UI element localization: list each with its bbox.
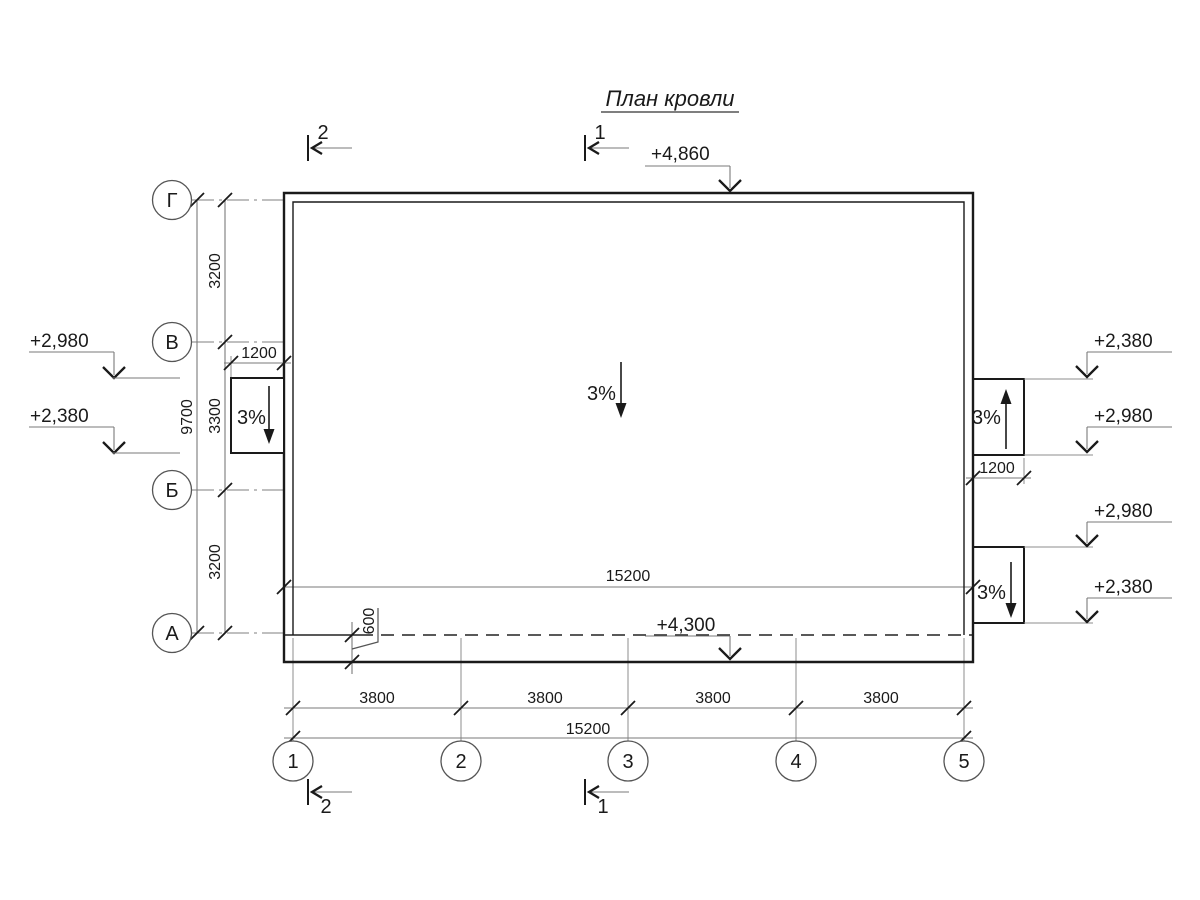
axis-label-5: 5 (958, 751, 969, 773)
dim-bottom-total: 15200 (566, 721, 611, 738)
axis-label-2: 2 (455, 751, 466, 773)
elevation-roof-bottom: +4,300 (645, 615, 741, 659)
section-mark-bottom-center: 1 (585, 779, 629, 818)
elevation-right-4: +2,380 (1076, 577, 1172, 622)
dim-bay-3: 3800 (695, 690, 731, 707)
dim-left-segment-2: 3300 (207, 398, 224, 434)
column-axis-markers: 1 2 3 4 5 (273, 741, 984, 781)
section-mark-top-center-label: 1 (594, 122, 605, 144)
axis-label-b: Б (165, 480, 178, 502)
elevation-right-1-label: +2,380 (1094, 331, 1153, 352)
dim-bay-2: 3800 (527, 690, 563, 707)
elevation-roof-top-label: +4,860 (651, 144, 710, 165)
dim-right-canopy: 1200 (979, 460, 1015, 477)
slope-roof: 3% (587, 383, 616, 405)
elevation-right-4-label: +2,380 (1094, 577, 1153, 598)
elevation-roof-bottom-label: +4,300 (657, 615, 716, 636)
section-mark-top-left: 2 (308, 122, 352, 161)
section-mark-bottom-left-label: 2 (320, 796, 331, 818)
axis-label-v: В (165, 332, 178, 354)
slope-right-lower-canopy: 3% (977, 582, 1006, 604)
elevation-right-3-label: +2,980 (1094, 501, 1153, 522)
elevation-right-3: +2,980 (1076, 501, 1172, 546)
elevation-right-1: +2,380 (1076, 331, 1172, 377)
axis-label-g: Г (167, 190, 178, 212)
right-lower-canopy-slope-arrow (1006, 562, 1017, 618)
section-mark-bottom-left: 2 (308, 779, 352, 818)
drawing-title: План кровли (605, 86, 734, 111)
right-upper-canopy-slope-arrow (1001, 389, 1012, 449)
elevation-roof-top: +4,860 (645, 144, 741, 191)
drawing-canvas: План кровли 9700 3200 3300 3200 Г В Б А (0, 0, 1200, 900)
dim-bay-1: 3800 (359, 690, 395, 707)
elevation-left-2: +2,380 (29, 406, 180, 453)
section-mark-top-left-label: 2 (317, 122, 328, 144)
dim-overhang: 600 (361, 608, 378, 635)
elevation-right-2: +2,980 (1076, 406, 1172, 452)
dim-left-total: 9700 (179, 399, 196, 435)
axis-label-a: А (165, 623, 179, 645)
elevation-left-1-label: +2,980 (30, 331, 89, 352)
dim-left-canopy: 1200 (241, 345, 277, 362)
roof-plan-drawing: План кровли 9700 3200 3300 3200 Г В Б А (0, 0, 1200, 900)
roof-slope-arrow (616, 362, 627, 418)
axis-label-1: 1 (287, 751, 298, 773)
elevation-left-2-label: +2,380 (30, 406, 89, 427)
dim-left-segment-1: 3200 (207, 253, 224, 289)
section-mark-top-center: 1 (585, 122, 629, 161)
dim-bay-4: 3800 (863, 690, 899, 707)
elevation-right-2-label: +2,980 (1094, 406, 1153, 427)
slope-right-upper-canopy: 3% (972, 407, 1001, 429)
axis-label-4: 4 (790, 751, 801, 773)
slope-left-canopy: 3% (237, 407, 266, 429)
axis-label-3: 3 (622, 751, 633, 773)
dim-left-segment-3: 3200 (207, 544, 224, 580)
dim-roof-width: 15200 (606, 568, 651, 585)
section-mark-bottom-center-label: 1 (597, 796, 608, 818)
roof-outline (284, 193, 973, 662)
